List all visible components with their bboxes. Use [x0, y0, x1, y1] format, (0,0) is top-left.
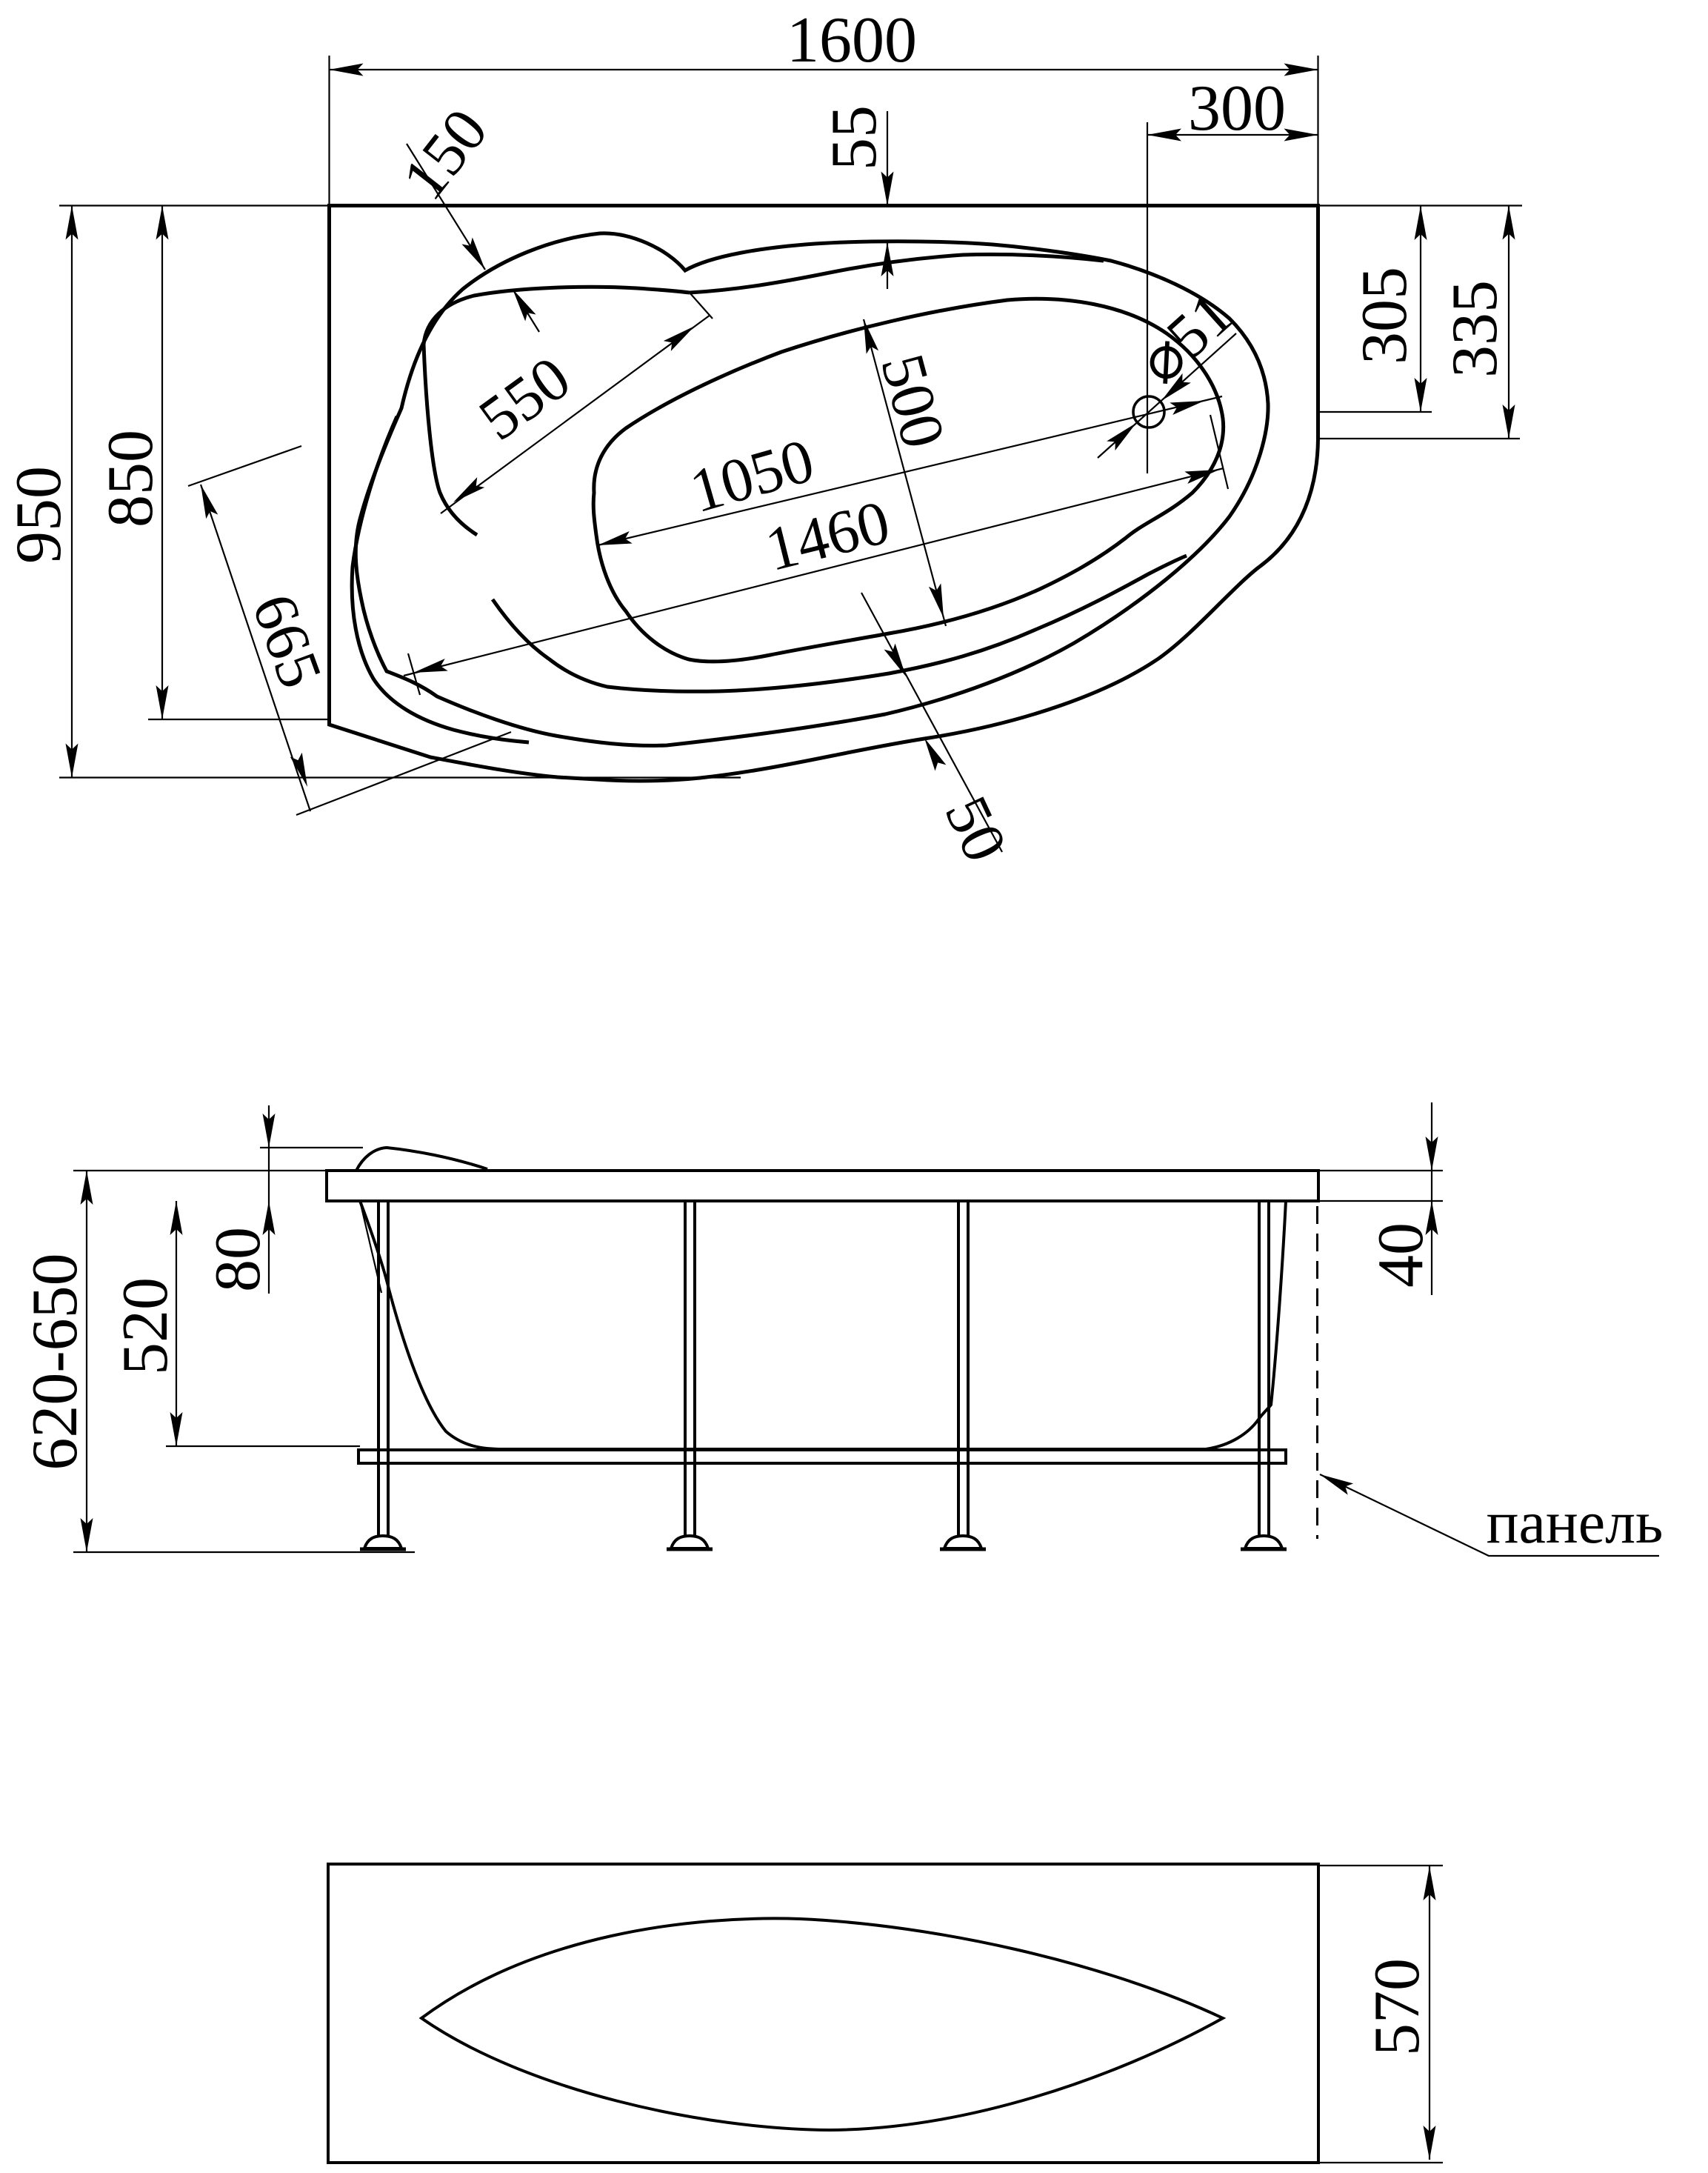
svg-text:панель: панель	[1487, 1488, 1664, 1556]
svg-text:950: 950	[3, 466, 75, 564]
svg-text:305: 305	[1349, 267, 1421, 365]
svg-text:620-650: 620-650	[19, 1253, 91, 1470]
svg-text:80: 80	[202, 1227, 274, 1292]
svg-text:520: 520	[110, 1277, 181, 1375]
svg-text:550: 550	[467, 343, 583, 453]
svg-text:665: 665	[238, 585, 335, 696]
svg-text:40: 40	[1365, 1222, 1437, 1288]
svg-text:335: 335	[1439, 280, 1511, 378]
svg-text:150: 150	[390, 96, 501, 213]
svg-text:⌀51: ⌀51	[1126, 279, 1246, 397]
svg-text:1600: 1600	[787, 4, 917, 76]
svg-text:55: 55	[818, 105, 890, 170]
svg-text:570: 570	[1361, 1958, 1433, 2056]
svg-text:50: 50	[931, 786, 1020, 871]
svg-text:500: 500	[867, 347, 958, 455]
svg-text:300: 300	[1188, 73, 1286, 144]
svg-text:850: 850	[95, 430, 167, 528]
